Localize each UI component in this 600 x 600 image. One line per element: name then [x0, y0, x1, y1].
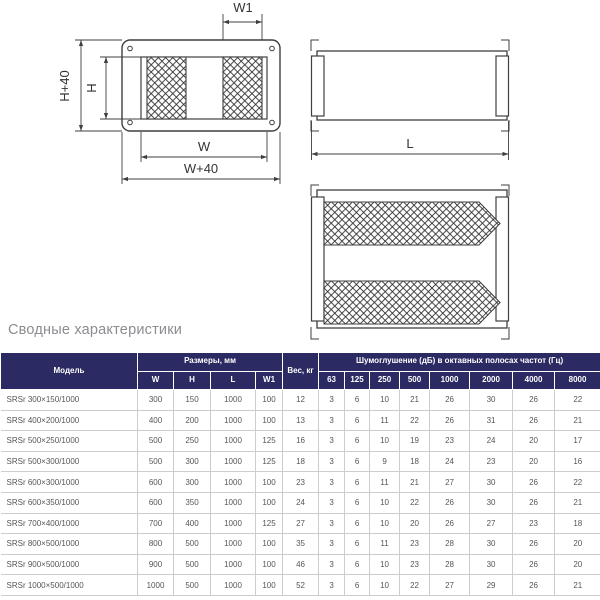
value-cell: 125: [256, 431, 283, 452]
value-cell: 26: [430, 513, 470, 534]
value-cell: 10: [370, 431, 400, 452]
value-cell: 29: [470, 575, 513, 596]
value-cell: 22: [400, 575, 430, 596]
table-row: SRSr 600×300/100060030010001002336112127…: [1, 472, 600, 493]
side-view-drawing: L: [311, 40, 509, 160]
value-cell: 3: [319, 390, 345, 411]
value-cell: 1000: [211, 451, 256, 472]
value-cell: 3: [319, 410, 345, 431]
model-cell: SRSr 300×150/1000: [1, 390, 138, 411]
baffle-hatch-left: [147, 57, 186, 119]
value-cell: 16: [555, 451, 600, 472]
value-cell: 125: [256, 513, 283, 534]
dim-label-w: W: [198, 139, 211, 154]
dim-label-l: L: [406, 136, 413, 151]
value-cell: 300: [174, 451, 211, 472]
value-cell: 1000: [211, 472, 256, 493]
value-cell: 26: [430, 390, 470, 411]
sub-col-header: 1000: [430, 371, 470, 390]
value-cell: 9: [370, 451, 400, 472]
value-cell: 19: [400, 431, 430, 452]
value-cell: 26: [513, 575, 555, 596]
value-cell: 30: [470, 390, 513, 411]
value-cell: 3: [319, 472, 345, 493]
sub-col-header: 2000: [470, 371, 513, 390]
value-cell: 3: [319, 451, 345, 472]
value-cell: 400: [138, 410, 174, 431]
sub-col-header: 63: [319, 371, 345, 390]
value-cell: 100: [256, 554, 283, 575]
value-cell: 31: [470, 410, 513, 431]
dim-label-h40: H+40: [57, 70, 72, 101]
value-cell: 250: [174, 431, 211, 452]
col-header-model: Модель: [1, 353, 138, 390]
value-cell: 26: [430, 410, 470, 431]
value-cell: 20: [555, 554, 600, 575]
value-cell: 600: [138, 492, 174, 513]
value-cell: 800: [138, 534, 174, 555]
sub-col-header: W1: [256, 371, 283, 390]
value-cell: 26: [513, 554, 555, 575]
model-cell: SRSr 700×400/1000: [1, 513, 138, 534]
value-cell: 21: [555, 492, 600, 513]
value-cell: 35: [283, 534, 319, 555]
value-cell: 26: [513, 534, 555, 555]
value-cell: 18: [283, 451, 319, 472]
sub-col-header: 125: [345, 371, 370, 390]
value-cell: 21: [400, 472, 430, 493]
value-cell: 6: [345, 534, 370, 555]
value-cell: 21: [555, 410, 600, 431]
value-cell: 20: [513, 431, 555, 452]
value-cell: 18: [400, 451, 430, 472]
value-cell: 3: [319, 492, 345, 513]
value-cell: 22: [555, 390, 600, 411]
spec-table-body: SRSr 300×150/100030015010001001236102126…: [1, 390, 600, 596]
value-cell: 900: [138, 554, 174, 575]
sub-col-header: 250: [370, 371, 400, 390]
value-cell: 100: [256, 492, 283, 513]
spec-table: Модель Размеры, мм Вес, кг Шумоглушение …: [0, 352, 600, 596]
value-cell: 1000: [211, 431, 256, 452]
value-cell: 3: [319, 575, 345, 596]
value-cell: 27: [430, 472, 470, 493]
value-cell: 100: [256, 410, 283, 431]
value-cell: 23: [283, 472, 319, 493]
value-cell: 22: [400, 410, 430, 431]
table-row: SRSr 1000×500/10001000500100010052361022…: [1, 575, 600, 596]
value-cell: 500: [174, 554, 211, 575]
value-cell: 1000: [211, 390, 256, 411]
value-cell: 20: [513, 451, 555, 472]
splitter-baffle-bottom: [324, 281, 500, 324]
value-cell: 3: [319, 431, 345, 452]
model-cell: SRSr 800×500/1000: [1, 534, 138, 555]
value-cell: 6: [345, 492, 370, 513]
col-group-dimensions: Размеры, мм: [138, 353, 283, 372]
sub-col-header: 500: [400, 371, 430, 390]
table-row: SRSr 800×500/100080050010001003536112328…: [1, 534, 600, 555]
col-header-weight: Вес, кг: [283, 353, 319, 390]
value-cell: 100: [256, 472, 283, 493]
value-cell: 26: [513, 390, 555, 411]
value-cell: 30: [470, 554, 513, 575]
value-cell: 24: [470, 431, 513, 452]
value-cell: 1000: [211, 554, 256, 575]
value-cell: 23: [400, 534, 430, 555]
dim-label-w40: W+40: [184, 161, 218, 176]
catalog-page: W1 H+40 H W W+40 L: [0, 0, 600, 600]
table-row: SRSr 500×300/100050030010001251836918242…: [1, 451, 600, 472]
value-cell: 21: [555, 575, 600, 596]
sub-col-header: 4000: [513, 371, 555, 390]
col-group-attenuation: Шумоглушение (дБ) в октавных полосах час…: [319, 353, 600, 372]
value-cell: 21: [400, 390, 430, 411]
value-cell: 12: [283, 390, 319, 411]
value-cell: 23: [400, 554, 430, 575]
table-row: SRSr 700×400/100070040010001252736102026…: [1, 513, 600, 534]
sub-col-header: 8000: [555, 371, 600, 390]
value-cell: 300: [174, 472, 211, 493]
value-cell: 1000: [211, 410, 256, 431]
value-cell: 100: [256, 534, 283, 555]
value-cell: 20: [400, 513, 430, 534]
value-cell: 10: [370, 492, 400, 513]
plan-view-drawing: [311, 185, 509, 339]
value-cell: 28: [430, 534, 470, 555]
value-cell: 18: [555, 513, 600, 534]
value-cell: 1000: [211, 492, 256, 513]
model-cell: SRSr 600×300/1000: [1, 472, 138, 493]
value-cell: 1000: [138, 575, 174, 596]
value-cell: 6: [345, 513, 370, 534]
value-cell: 26: [513, 410, 555, 431]
value-cell: 30: [470, 492, 513, 513]
value-cell: 30: [470, 534, 513, 555]
value-cell: 22: [400, 492, 430, 513]
value-cell: 16: [283, 431, 319, 452]
value-cell: 500: [138, 451, 174, 472]
value-cell: 350: [174, 492, 211, 513]
model-cell: SRSr 400×200/1000: [1, 410, 138, 431]
value-cell: 300: [138, 390, 174, 411]
value-cell: 11: [370, 472, 400, 493]
value-cell: 27: [430, 575, 470, 596]
value-cell: 10: [370, 390, 400, 411]
table-row: SRSr 600×350/100060035010001002436102226…: [1, 492, 600, 513]
value-cell: 600: [138, 472, 174, 493]
table-header: Модель Размеры, мм Вес, кг Шумоглушение …: [1, 353, 600, 390]
value-cell: 150: [174, 390, 211, 411]
value-cell: 22: [555, 472, 600, 493]
technical-drawings: W1 H+40 H W W+40 L: [0, 0, 600, 348]
value-cell: 28: [430, 554, 470, 575]
value-cell: 26: [513, 472, 555, 493]
table-row: SRSr 300×150/100030015010001001236102126…: [1, 390, 600, 411]
value-cell: 1000: [211, 575, 256, 596]
value-cell: 6: [345, 431, 370, 452]
value-cell: 10: [370, 513, 400, 534]
value-cell: 46: [283, 554, 319, 575]
value-cell: 500: [174, 534, 211, 555]
value-cell: 23: [430, 431, 470, 452]
value-cell: 20: [555, 534, 600, 555]
value-cell: 100: [256, 390, 283, 411]
value-cell: 3: [319, 554, 345, 575]
value-cell: 6: [345, 451, 370, 472]
value-cell: 24: [430, 451, 470, 472]
model-cell: SRSr 500×250/1000: [1, 431, 138, 452]
value-cell: 17: [555, 431, 600, 452]
splitter-baffle-top: [324, 202, 500, 245]
value-cell: 125: [256, 451, 283, 472]
table-row: SRSr 500×250/100050025010001251636101923…: [1, 431, 600, 452]
value-cell: 13: [283, 410, 319, 431]
table-row: SRSr 900×500/100090050010001004636102328…: [1, 554, 600, 575]
value-cell: 6: [345, 410, 370, 431]
value-cell: 10: [370, 575, 400, 596]
value-cell: 1000: [211, 513, 256, 534]
value-cell: 1000: [211, 534, 256, 555]
value-cell: 400: [174, 513, 211, 534]
value-cell: 11: [370, 534, 400, 555]
table-row: SRSr 400×200/100040020010001001336112226…: [1, 410, 600, 431]
sub-col-header: H: [174, 371, 211, 390]
value-cell: 500: [138, 431, 174, 452]
sub-col-header: L: [211, 371, 256, 390]
sub-col-header: W: [138, 371, 174, 390]
value-cell: 6: [345, 472, 370, 493]
value-cell: 24: [283, 492, 319, 513]
value-cell: 3: [319, 513, 345, 534]
value-cell: 11: [370, 410, 400, 431]
section-title: Сводные характеристики: [8, 322, 182, 338]
model-cell: SRSr 1000×500/1000: [1, 575, 138, 596]
dim-label-w1: W1: [233, 0, 253, 15]
model-cell: SRSr 600×350/1000: [1, 492, 138, 513]
value-cell: 27: [283, 513, 319, 534]
model-cell: SRSr 900×500/1000: [1, 554, 138, 575]
value-cell: 6: [345, 554, 370, 575]
value-cell: 30: [470, 472, 513, 493]
value-cell: 23: [513, 513, 555, 534]
value-cell: 6: [345, 390, 370, 411]
dim-label-h: H: [84, 83, 99, 92]
value-cell: 500: [174, 575, 211, 596]
dimension-w1: [223, 14, 262, 40]
value-cell: 27: [470, 513, 513, 534]
baffle-hatch-right: [223, 57, 262, 119]
value-cell: 10: [370, 554, 400, 575]
front-view-drawing: W1 H+40 H W W+40: [57, 0, 280, 184]
value-cell: 26: [513, 492, 555, 513]
value-cell: 26: [430, 492, 470, 513]
value-cell: 3: [319, 534, 345, 555]
value-cell: 52: [283, 575, 319, 596]
value-cell: 100: [256, 575, 283, 596]
value-cell: 6: [345, 575, 370, 596]
header-row-groups: Модель Размеры, мм Вес, кг Шумоглушение …: [1, 353, 600, 372]
model-cell: SRSr 500×300/1000: [1, 451, 138, 472]
value-cell: 200: [174, 410, 211, 431]
value-cell: 700: [138, 513, 174, 534]
value-cell: 23: [470, 451, 513, 472]
